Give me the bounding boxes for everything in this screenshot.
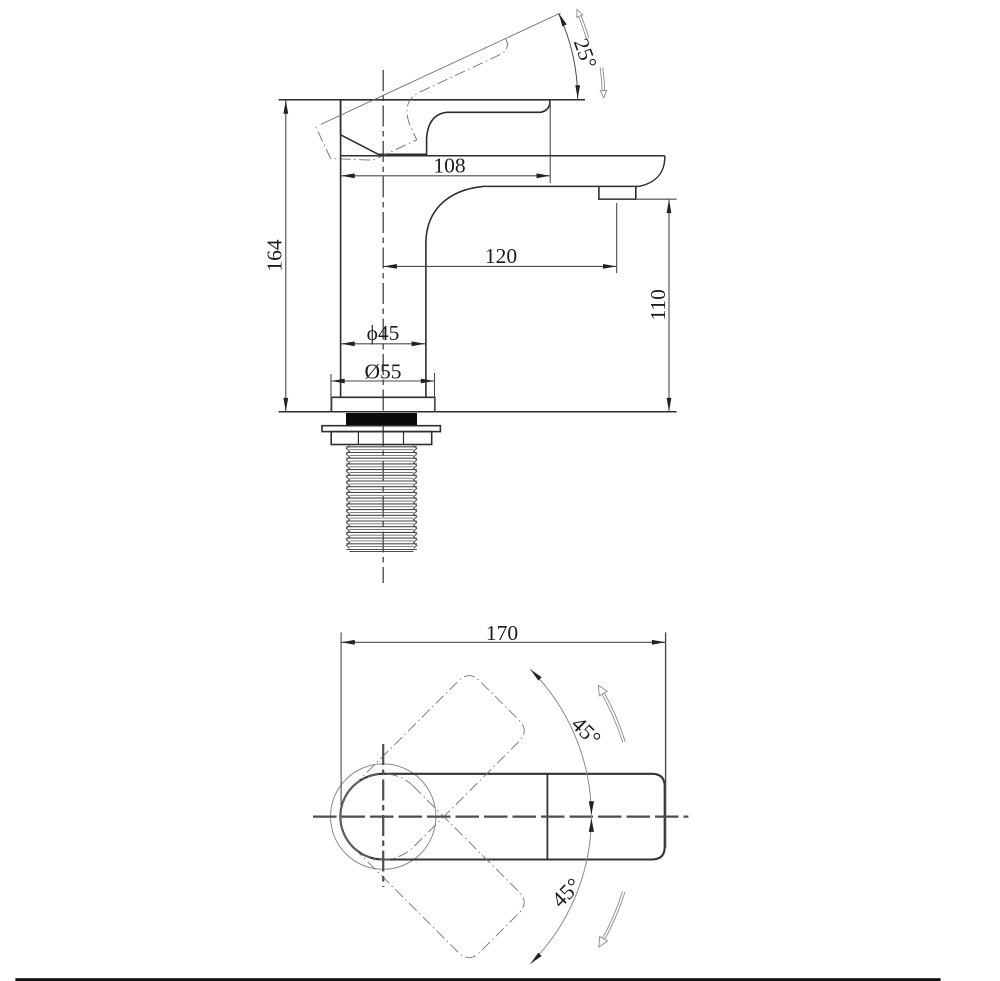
svg-text:120: 120: [485, 244, 517, 268]
svg-text:Ø55: Ø55: [364, 360, 401, 384]
svg-text:45°: 45°: [546, 873, 585, 912]
svg-text:ϕ45: ϕ45: [367, 321, 400, 345]
svg-text:45°: 45°: [567, 711, 606, 750]
svg-text:170: 170: [486, 621, 518, 645]
svg-text:164: 164: [263, 239, 287, 272]
svg-text:108: 108: [433, 154, 465, 178]
svg-text:25°: 25°: [569, 35, 602, 72]
svg-text:110: 110: [646, 289, 670, 320]
